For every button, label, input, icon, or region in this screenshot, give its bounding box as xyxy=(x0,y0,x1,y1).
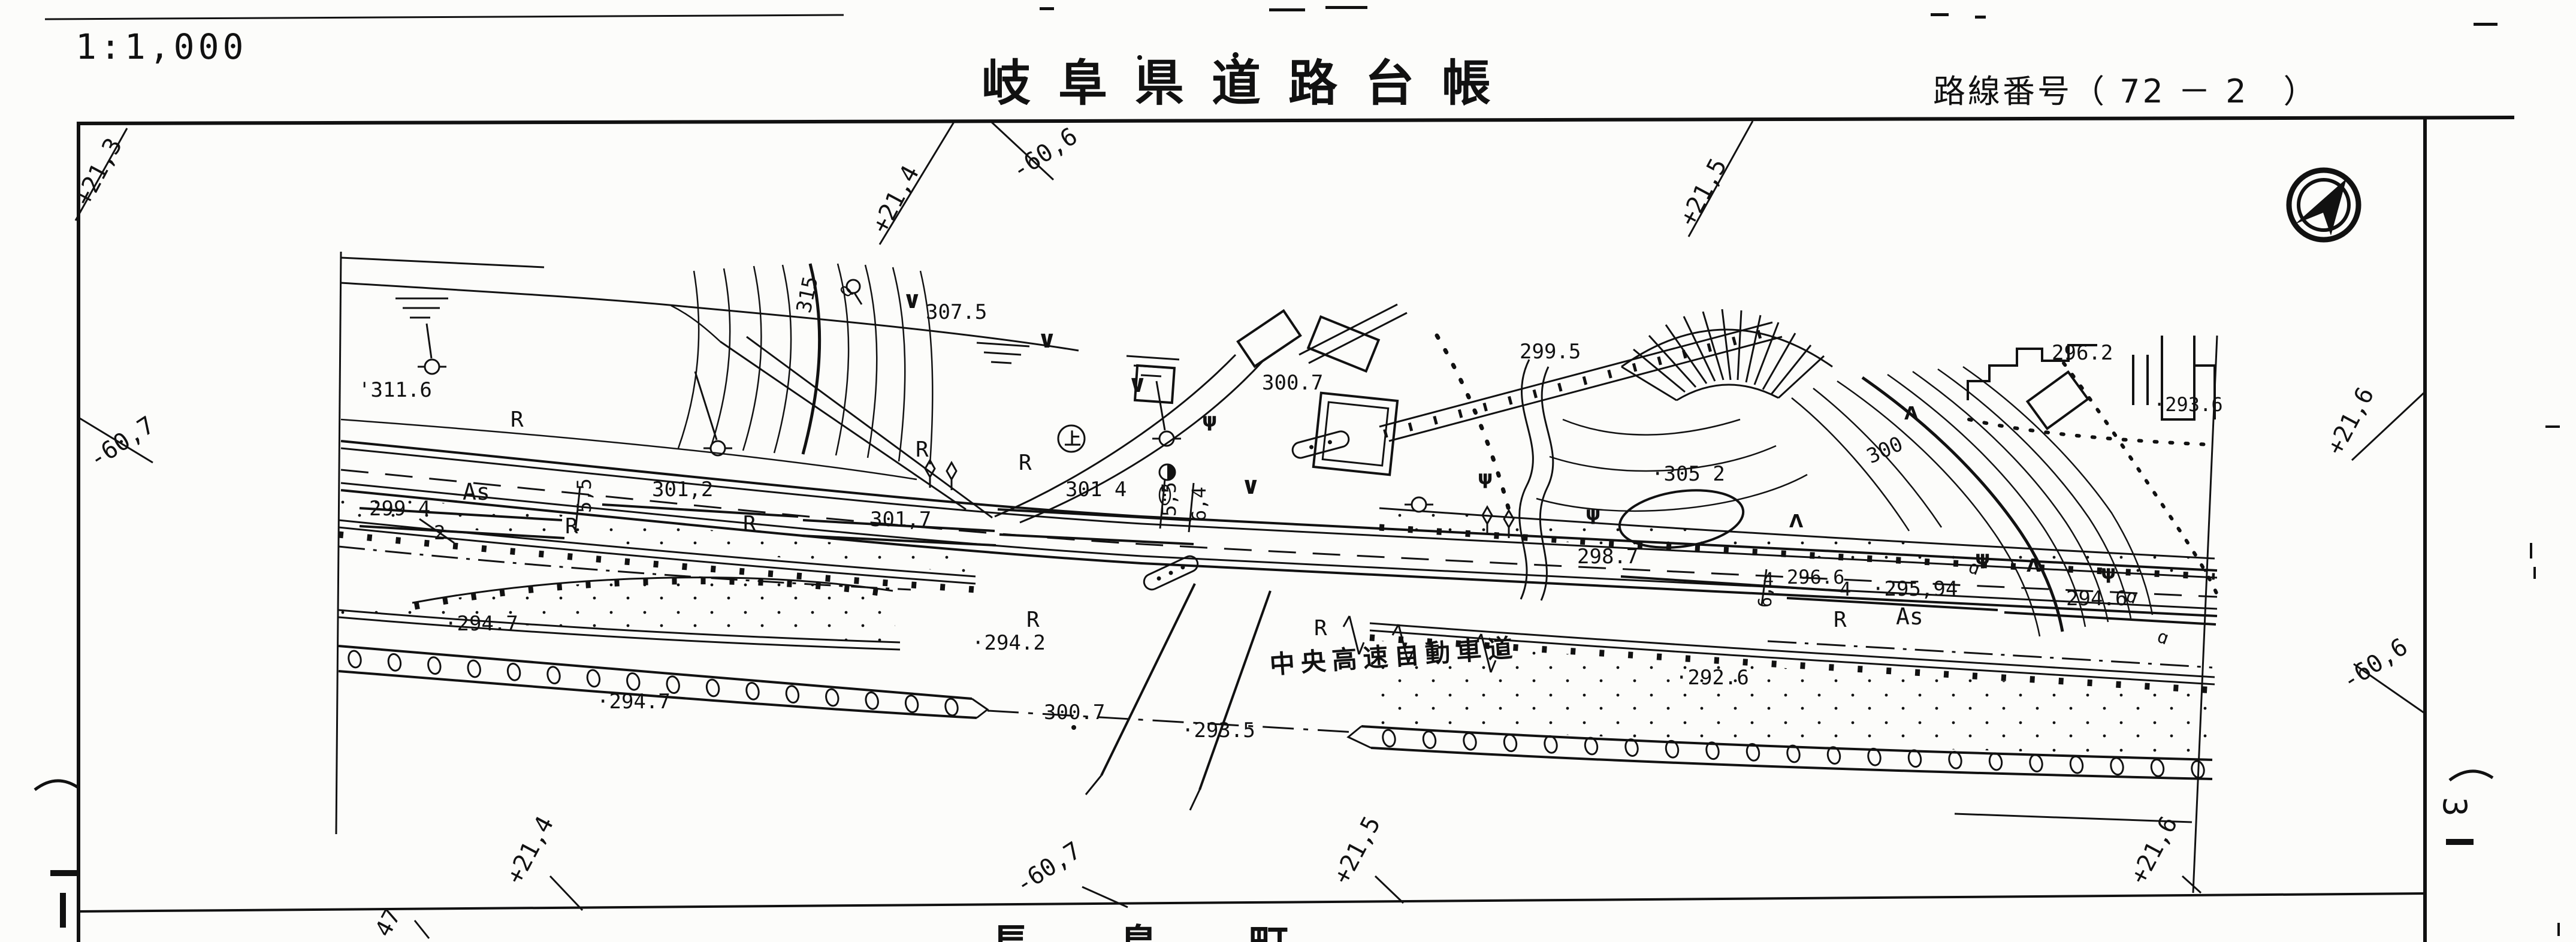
sheet-right-numeral: 3 xyxy=(2436,797,2474,817)
map-text-label: ∨ xyxy=(1241,472,1260,500)
map-text-label: R xyxy=(1019,451,1032,475)
map-text-label: R xyxy=(1314,616,1327,641)
map-text-label: +21,5 xyxy=(1328,812,1386,889)
sheet-number-marks: 3 xyxy=(35,771,2493,928)
map-text-label: 307.5 xyxy=(926,300,987,324)
map-text-label: ∨ xyxy=(1037,326,1056,354)
map-text-label: -60,7 xyxy=(1010,837,1086,899)
map-text-label: 298.7 xyxy=(1577,545,1638,569)
map-text-label: 300.7 xyxy=(1044,701,1105,724)
map-text-label: ·294.7 xyxy=(445,612,518,636)
map-text-label: R xyxy=(565,514,578,539)
map-text-label: ·295,94 xyxy=(1872,577,1958,601)
north-arrow-icon xyxy=(2289,170,2358,240)
road-register-sheet: 1:1,000 岐阜県道路台帳 路線番号（ 72 － 2 ） 長島町 xyxy=(0,0,2576,942)
map-text-label: ψ xyxy=(1586,502,1600,525)
map-text-label: 上 xyxy=(1064,429,1081,449)
map-text-label: ·293.5 xyxy=(1182,718,1255,742)
map-text-label: ·294.7 xyxy=(597,690,671,714)
map-text-label: 301,2 xyxy=(652,478,713,502)
map-text-label: ·305 2 xyxy=(1651,462,1725,486)
map-text-label: ψ xyxy=(1478,466,1493,489)
map-text-label: ·294.2 xyxy=(972,631,1046,655)
map-text-label: ψ xyxy=(1202,409,1217,431)
map-text-label: -60,6 xyxy=(1007,122,1082,185)
map-text-label: '311.6 xyxy=(358,378,432,402)
map-text-label: 296.6 xyxy=(1787,566,1844,588)
map-text-label: 296.2 xyxy=(2052,341,2113,365)
left-paren-icon xyxy=(35,781,78,790)
map-text-label: 294.6 xyxy=(2066,587,2127,611)
map-text-label: 301 4 xyxy=(1065,478,1127,502)
map-text-label: 4 xyxy=(1840,578,1851,600)
map-text-label: Λ xyxy=(1904,403,1919,424)
map-text-label: 299.5 xyxy=(1520,340,1581,364)
map-text-label: Λ xyxy=(1789,511,1804,532)
embankment-bank xyxy=(1299,304,1782,441)
map-text-label: 299 4 xyxy=(369,497,430,521)
map-labels: '311.6299 4As25,5301,2301,7301 4307.5315… xyxy=(358,274,2223,742)
map-text-label: -60,6 xyxy=(2337,633,2412,695)
map-text-label: R xyxy=(511,407,524,432)
map-text-label: ∨ xyxy=(902,286,922,314)
map-text-label: R xyxy=(743,512,756,536)
map-text-label: +21,6 xyxy=(2321,383,2379,460)
map-text-label: ɑ xyxy=(2154,626,2172,650)
map-text-label: 301,7 xyxy=(870,508,931,532)
right-paren-icon xyxy=(2450,771,2493,780)
map-text-label: +21,4 xyxy=(866,161,925,238)
culvert-symbol xyxy=(1291,430,1350,460)
sheet-left-numeral xyxy=(60,893,66,928)
map-text-label: ψ xyxy=(2101,561,2116,584)
map-text-label: ·292.6 xyxy=(1675,666,1749,690)
map-canvas: 3 xyxy=(0,0,2576,942)
map-text-label: +21,6 xyxy=(2125,812,2183,889)
map-text-label: 2 xyxy=(434,521,445,544)
map-text-label: 5,5 xyxy=(573,478,596,513)
map-text-label: 300 xyxy=(1863,432,1906,469)
map-text-label: Λ xyxy=(2027,555,2041,576)
expressway-gap-dashdot xyxy=(987,711,1355,732)
map-text-label: R xyxy=(1834,608,1847,632)
map-text-label: -60,7 xyxy=(84,411,159,473)
map-text-label: 300.7 xyxy=(1262,371,1323,395)
map-text-label: 6,4 xyxy=(1188,487,1210,521)
map-text-label: R xyxy=(916,437,929,462)
terrain-upper-left xyxy=(341,258,1181,464)
map-text-label: R xyxy=(1026,608,1040,632)
map-text-label: ∨ xyxy=(1128,370,1147,398)
map-text-label: 5,5 xyxy=(1158,482,1180,517)
map-text-label: 6, xyxy=(1755,586,1776,608)
map-text-label: As xyxy=(1896,603,1923,630)
scan-noise xyxy=(45,6,2560,936)
overpass-bridge xyxy=(1071,584,1270,810)
map-text-label: ·293.6 xyxy=(2154,393,2223,416)
map-text-label: As xyxy=(463,479,490,505)
map-text-label: +21,5 xyxy=(1674,154,1732,231)
